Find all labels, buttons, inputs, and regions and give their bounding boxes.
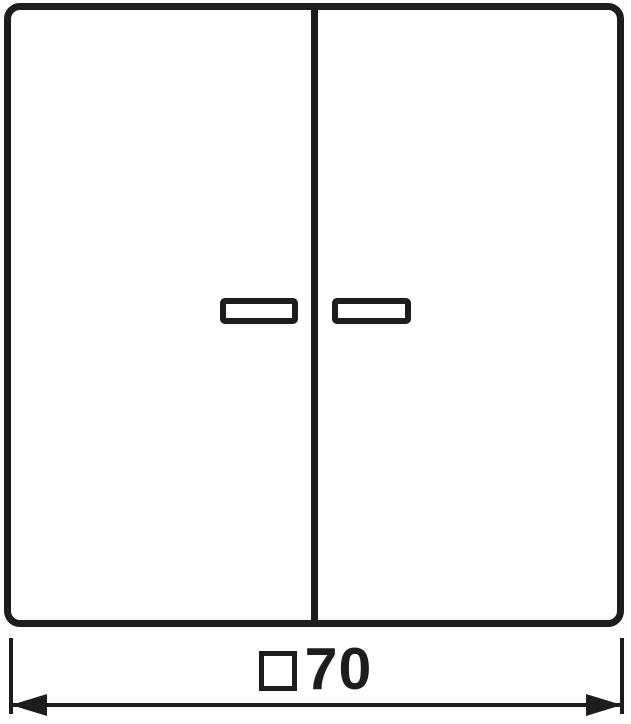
left-indicator-window (220, 298, 298, 324)
rocker-divider-line (311, 3, 318, 627)
drawing-canvas: 70 (0, 0, 631, 724)
dimension-value: 70 (305, 648, 373, 692)
left-arrowhead-icon (11, 694, 47, 716)
dimension-line (11, 703, 622, 707)
right-indicator-window (332, 298, 411, 324)
dimension-label: 70 (0, 648, 631, 692)
right-arrowhead-icon (586, 694, 622, 716)
square-symbol-icon (259, 651, 297, 691)
